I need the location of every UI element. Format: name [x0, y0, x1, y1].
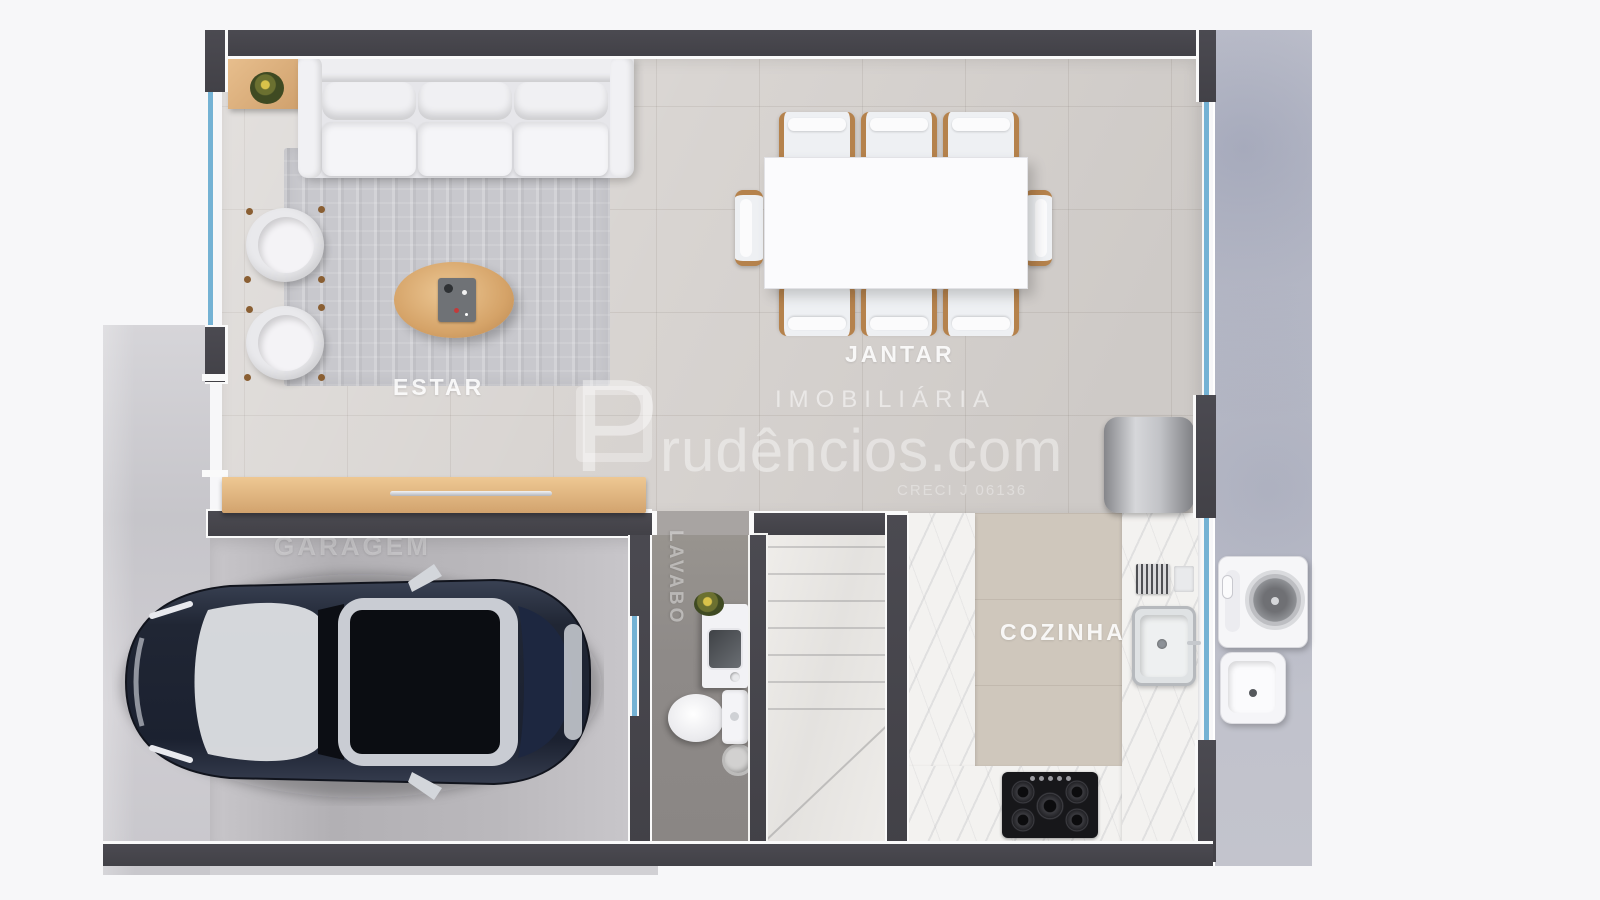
dining-table: [764, 157, 1028, 289]
dining-chair-head: [1024, 190, 1052, 266]
chair-backrest: [952, 118, 1010, 131]
wall-stairs-kitchen: [885, 513, 909, 849]
chair-backrest: [870, 118, 928, 131]
armchair-feet: [246, 208, 253, 215]
garage-sideboard: [222, 477, 646, 513]
window-right-top: [1202, 102, 1211, 395]
chair-backrest: [1035, 199, 1047, 257]
cooktop-knobs: [1030, 776, 1035, 781]
coffee-table: [394, 262, 514, 338]
window-lavabo: [630, 616, 639, 716]
armchair: [246, 208, 324, 282]
burner: [1011, 780, 1035, 804]
wall-left-corner: [205, 30, 228, 92]
wall-right-mid: [1193, 395, 1216, 518]
washing-machine: [1218, 556, 1308, 648]
room-label-lavabo: LAVABO: [664, 530, 686, 625]
refrigerator: [1104, 417, 1194, 513]
cooktop: [1002, 772, 1098, 838]
toilet-bowl: [668, 694, 724, 742]
sideboard-handle: [390, 491, 552, 496]
lavabo-floor: [648, 533, 748, 845]
sofa-back-cushion: [418, 82, 512, 120]
room-label-estar: ESTAR: [393, 374, 484, 401]
sofa-back-cushion: [322, 82, 416, 120]
stair-treads: [764, 521, 885, 735]
armchair-seat: [258, 217, 314, 273]
wall-lavabo-stairs: [748, 533, 768, 849]
armchair-seat: [258, 315, 314, 371]
chair-backrest: [788, 118, 846, 131]
sofa-back-cushion: [514, 82, 608, 120]
door-jamb: [202, 470, 228, 477]
tray-items: [444, 284, 453, 293]
flush-button: [730, 712, 739, 721]
sofa: [298, 56, 634, 178]
side-yard-concrete: [1213, 30, 1312, 866]
tub-drain: [1249, 689, 1257, 697]
coffee-table-tray: [438, 278, 476, 322]
sofa-seat-cushion: [322, 122, 416, 176]
wall-right-corner: [1196, 30, 1216, 102]
armchair-feet: [246, 306, 253, 313]
room-label-cozinha: COZINHA: [1000, 619, 1126, 646]
wall-top: [205, 30, 1213, 59]
dining-chair-head: [735, 190, 763, 266]
staircase: [764, 513, 885, 845]
room-label-garagem: GARAGEM: [274, 531, 431, 562]
sofa-seat-cushion: [514, 122, 608, 176]
burner: [1065, 780, 1089, 804]
plant-icon: [694, 592, 724, 616]
sink-drain: [1157, 639, 1167, 649]
sink-faucet: [1187, 641, 1201, 645]
chair-backrest: [740, 199, 752, 257]
window-right-low: [1202, 518, 1211, 740]
dish-rack: [1136, 564, 1170, 594]
dining-chair: [861, 284, 937, 336]
laundry-tub: [1220, 652, 1286, 724]
washer-glint: [1271, 597, 1279, 605]
chair-backrest: [870, 317, 928, 330]
burner: [1011, 808, 1035, 832]
wall-bottom: [103, 841, 1213, 866]
burner: [1036, 792, 1064, 820]
lavabo-vanity: [702, 604, 748, 688]
car-graphic: [112, 558, 604, 806]
plant-icon: [250, 72, 284, 104]
floor-plan-canvas: ESTAR JANTAR GARAGEM LAVABO COZINHA Prud…: [0, 0, 1600, 900]
window-left: [206, 92, 215, 325]
armchair: [246, 306, 324, 380]
soap-dish: [730, 672, 740, 682]
chair-backrest: [788, 317, 846, 330]
burner: [1065, 808, 1089, 832]
door-jamb: [202, 374, 228, 381]
kitchen-sink: [1132, 606, 1196, 686]
washer-knob: [1222, 575, 1233, 599]
sofa-back: [298, 56, 634, 82]
sofa-seat-cushion: [418, 122, 512, 176]
vanity-sink: [707, 628, 743, 670]
dish-tray: [1174, 566, 1194, 592]
dining-chair: [779, 284, 855, 336]
car-top-view: [112, 558, 604, 806]
sofa-arm-left: [298, 56, 322, 178]
chair-backrest: [952, 317, 1010, 330]
sofa-arm-right: [610, 56, 634, 178]
stair-break-line: [766, 724, 889, 840]
tub-basin: [1228, 661, 1276, 713]
room-label-jantar: JANTAR: [845, 341, 955, 368]
dining-chair: [943, 284, 1019, 336]
toilet-tank: [722, 690, 748, 744]
